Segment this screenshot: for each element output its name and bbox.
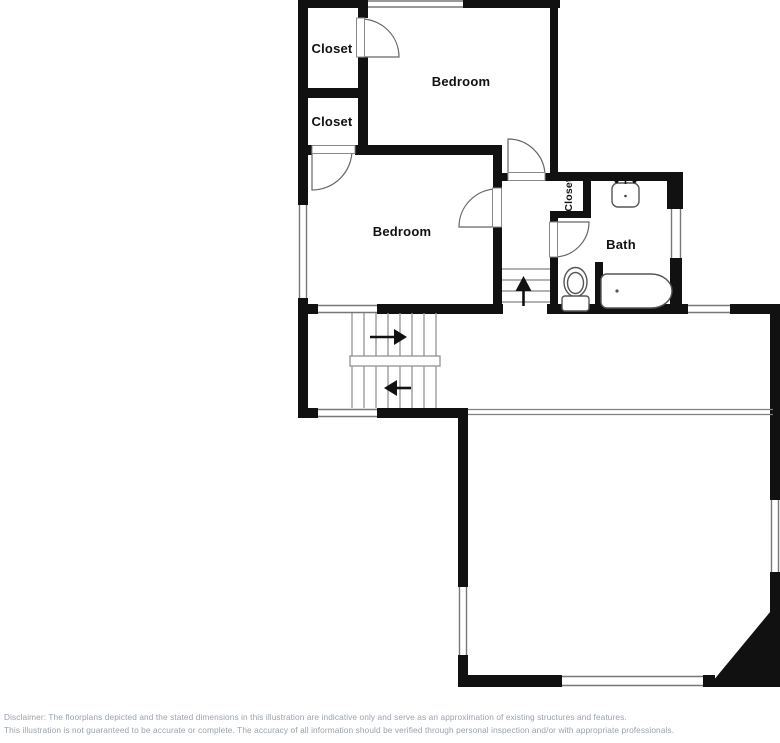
room-label-bath: Bath: [571, 237, 671, 252]
door-arc: [312, 150, 352, 190]
room-label-closet-top: Closet: [282, 41, 382, 56]
room-label-bedroom-upper: Bedroom: [411, 74, 511, 89]
room-label-bedroom-middle: Bedroom: [352, 224, 452, 239]
corner-wall: [708, 600, 780, 687]
window: [770, 500, 780, 572]
window: [318, 408, 377, 418]
disclaimer: Disclaimer: The floorplans depicted and …: [4, 711, 674, 737]
walls: [298, 0, 780, 687]
open-edge-line: [468, 410, 773, 415]
window: [318, 304, 377, 314]
stairs-landing-rail: [350, 356, 440, 366]
toilet-icon: [562, 268, 589, 312]
floorplan-page: Closet Bedroom Closet Bedroom Closet Bat…: [0, 0, 780, 743]
window: [562, 675, 703, 687]
door-leaf: [493, 188, 502, 227]
bathtub-icon: [601, 274, 672, 308]
window: [458, 587, 468, 655]
disclaimer-line-2: This illustration is not guaranteed to b…: [4, 724, 674, 737]
windows: [298, 0, 780, 687]
window: [688, 304, 730, 314]
window: [368, 0, 463, 8]
room-label-closet-hall: Closet: [563, 145, 575, 245]
floorplan-drawing: [0, 0, 780, 743]
door-leaf: [508, 173, 545, 181]
window: [670, 209, 682, 258]
door-arc: [459, 189, 497, 227]
sink-icon: [612, 175, 639, 207]
disclaimer-line-1: Disclaimer: The floorplans depicted and …: [4, 711, 674, 724]
door-leaf: [550, 222, 558, 257]
window: [298, 205, 308, 298]
door-arc: [508, 139, 545, 176]
room-label-closet-middle: Closet: [282, 114, 382, 129]
door-leaf: [312, 146, 355, 154]
